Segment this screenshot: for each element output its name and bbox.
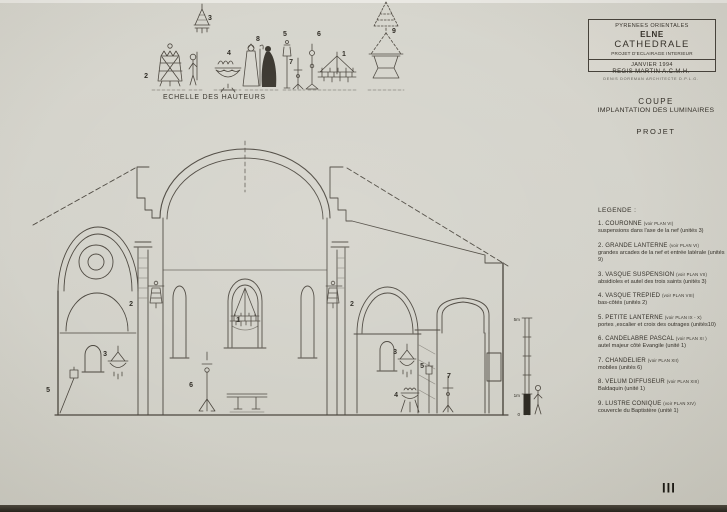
sheet-title-line2: IMPLANTATION DES LUMINAIRES [585,107,727,114]
section-outline [33,141,508,415]
legend-item-ref: (voir PLAN XI ) [676,336,707,341]
legend-item-desc: suspensions dans l'axe de la nef (unités… [598,228,725,236]
legend-item-desc: portes ,escalier et croix des outrages (… [598,322,725,330]
scan-edge-bottom [0,505,727,512]
title-building: CATHEDRALE [589,39,715,50]
marker-3-right: 3 [393,349,397,356]
legend-item-9: 9. LUSTRE CONIQUE (voir PLAN XIV) couver… [598,401,725,416]
marker-3-row: 3 [208,15,212,22]
marker-4-section: 4 [394,392,398,399]
legend-item-desc: couvercle du Baptistère (unité 1) [598,408,725,416]
marker-8-row: 8 [256,36,260,43]
fixture-sketch-row [152,2,404,92]
title-block: PYRENEES ORIENTALES ELNE CATHEDRALE PROJ… [588,19,716,72]
scale-5m-label: 5m [514,317,521,322]
marker-1-nave: 1 [236,317,240,324]
legend-item-ref: (voir PLAN XIII) [667,379,699,384]
page-number: III [662,479,676,495]
legend-item-ref: (voir PLAN VII) [676,272,707,277]
drawing-sheet: 3 2 4 8 5 7 6 1 9 2 2 3 3 1 5 5 4 6 7 5m… [0,0,727,512]
sheet-headings: COUPE IMPLANTATION DES LUMINAIRES PROJET [585,97,727,136]
legend-item-name: 5. PETITE LANTERNE [598,315,663,321]
marker-5-left: 5 [46,387,50,394]
legend-item-desc: grandes arcades de la nef et entrée laté… [598,250,725,265]
legend-item-ref: (voir PLAN VI) [670,243,700,248]
architect-name-2: DENIS DOREMAN ARCHITECTE D.P.L.G. [588,77,714,81]
legend-item-desc: bas-côtés (unités 2) [598,300,725,308]
title-project: PROJET D'ECLAIRAGE INTERIEUR [589,51,715,56]
scale-row-caption: ECHELLE DES HAUTEURS [163,94,266,101]
scale-0-label: 0 [517,412,520,417]
legend-item-name: 1. COURONNE [598,221,642,227]
marker-1-row: 1 [342,51,346,58]
sheet-phase: PROJET [585,127,727,136]
architect-name: REGIS MARTIN A.C.M.H. [588,69,714,75]
legend-item-8: 8. VELUM DIFFUSEUR (voir PLAN XIII) Bald… [598,379,725,394]
legend-item-desc: absidioles et autel des trois saints (un… [598,279,725,287]
marker-7-row: 7 [289,59,293,66]
marker-6-section: 6 [189,382,193,389]
sheet-title-line1: COUPE [585,97,727,106]
legend-item-4: 4. VASQUE TREPIED (voir PLAN VIII) bas-c… [598,293,725,308]
legend-item-desc: mobiles (unités 6) [598,365,725,373]
fixture-number-labels: 3 2 4 8 5 7 6 1 9 2 2 3 3 1 5 5 4 6 7 5m… [46,15,520,417]
height-scale-bar [522,318,542,415]
legend-item-7: 7. CHANDELIER (voir PLAN XII) mobiles (u… [598,358,725,373]
legend-item-5: 5. PETITE LANTERNE (voir PLAN IX - X) po… [598,315,725,330]
legend-item-name: 9. LUSTRE CONIQUE [598,401,661,407]
legend: LEGENDE : 1. COURONNE (voir PLAN VI) sus… [598,207,725,415]
marker-6-row: 6 [317,31,321,38]
marker-3-left: 3 [103,351,107,358]
legend-item-name: 2. GRANDE LANTERNE [598,243,668,249]
legend-item-1: 1. COURONNE (voir PLAN VI) suspensions d… [598,221,725,236]
marker-5-row: 5 [283,31,287,38]
marker-7-section: 7 [447,373,451,380]
legend-item-name: 7. CHANDELIER [598,358,646,364]
marker-9-row: 9 [392,28,396,35]
scale-1m-label: 1m [514,393,521,398]
title-region: PYRENEES ORIENTALES [589,20,715,29]
marker-2-left: 2 [129,301,133,308]
legend-item-name: 6. CANDELABRE PASCAL [598,336,674,342]
marker-2-right: 2 [350,301,354,308]
marker-4-row: 4 [227,50,231,57]
marker-5-right: 5 [420,363,424,370]
legend-item-ref: (voir PLAN IX - X) [665,315,702,320]
legend-item-ref: (voir PLAN XII) [648,358,679,363]
legend-item-ref: (voir PLAN VI) [644,221,674,226]
legend-item-desc: Baldaquin (unité 1) [598,386,725,394]
marker-2-row: 2 [144,73,148,80]
legend-item-name: 4. VASQUE TREPIED [598,293,660,299]
architect-credits: REGIS MARTIN A.C.M.H. DENIS DOREMAN ARCH… [588,69,714,81]
legend-item-3: 3. VASQUE SUSPENSION (voir PLAN VII) abs… [598,272,725,287]
legend-item-desc: autel majeur côté Evangile (unité 1) [598,343,725,351]
legend-item-ref: (voir PLAN XIV) [663,401,696,406]
legend-item-6: 6. CANDELABRE PASCAL (voir PLAN XI ) aut… [598,336,725,351]
legend-item-name: 8. VELUM DIFFUSEUR [598,379,665,385]
legend-item-name: 3. VASQUE SUSPENSION [598,272,674,278]
legend-item-ref: (voir PLAN VIII) [662,293,694,298]
title-city: ELNE [589,30,715,39]
legend-title: LEGENDE : [598,207,725,214]
legend-item-2: 2. GRANDE LANTERNE (voir PLAN VI) grande… [598,243,725,265]
